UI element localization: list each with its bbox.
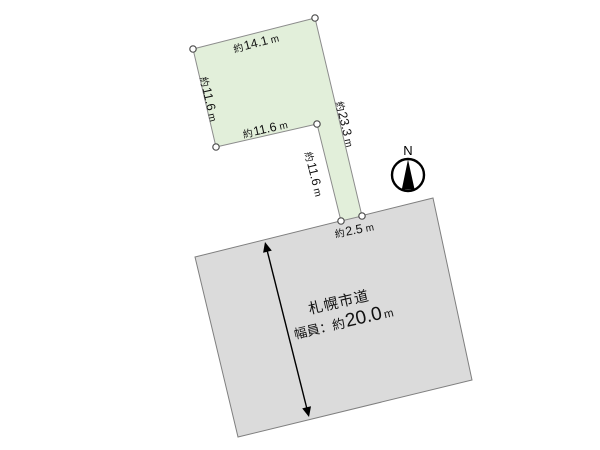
land-plot-diagram: 約14.1m 約11.6m 約11.6m 約23.3m 約11.6m 約2.5m… [0, 0, 600, 450]
vertex-marker [213, 144, 219, 150]
vertex-marker [338, 218, 344, 224]
compass: N [392, 143, 424, 191]
diagram-canvas: 約14.1m 約11.6m 約11.6m 約23.3m 約11.6m 約2.5m… [0, 0, 600, 450]
compass-needle-icon [402, 160, 415, 190]
compass-north-label: N [403, 143, 412, 158]
vertex-marker [190, 46, 196, 52]
vertex-marker [359, 213, 365, 219]
vertex-marker [312, 15, 318, 21]
dimension-strip-left-edge: 約11.6m [302, 150, 327, 198]
vertex-marker [314, 121, 320, 127]
